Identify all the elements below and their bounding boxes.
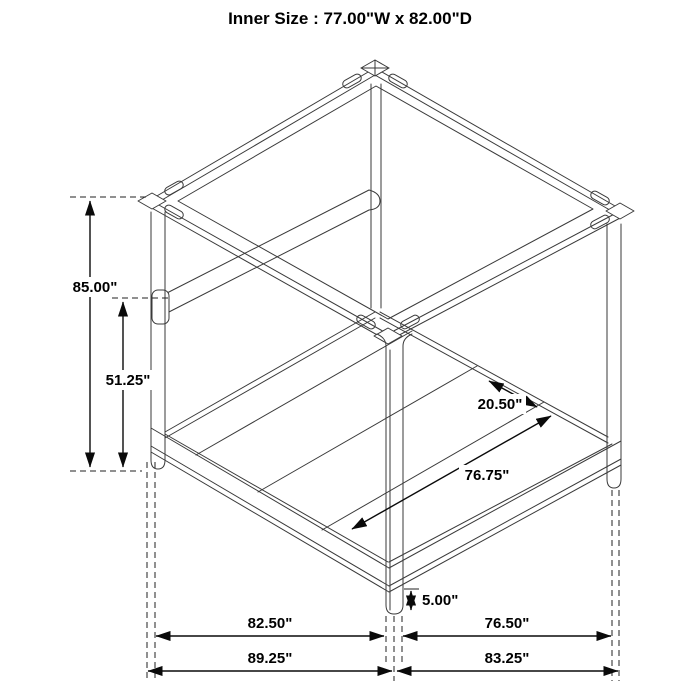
front-left-rail xyxy=(151,428,389,592)
front-post xyxy=(386,346,403,614)
dim-side-depth-overall-label: 83.25" xyxy=(485,650,530,667)
glass-inner-edge xyxy=(178,86,593,319)
dim-leg-height-label: 5.00" xyxy=(422,592,458,609)
dim-rail-top-height-label: 51.25" xyxy=(106,372,151,389)
extension-lines xyxy=(70,197,619,681)
drawing-title: Inner Size : 77.00"W x 82.00"D xyxy=(228,9,472,28)
dim-overall-height-label: 85.00" xyxy=(73,279,118,296)
rail-bracket xyxy=(152,290,169,324)
corner-slots xyxy=(163,73,610,331)
platform-slats xyxy=(196,331,544,530)
corner-caps xyxy=(138,60,634,344)
posts xyxy=(151,212,621,614)
front-right-rail xyxy=(389,441,621,592)
right-post xyxy=(607,224,621,488)
back-post xyxy=(371,84,381,308)
mid-rail xyxy=(152,190,380,324)
left-post xyxy=(151,212,165,469)
dim-front-width-inner-label: 82.50" xyxy=(248,615,293,632)
dim-corner-clearance-label: 20.50" xyxy=(478,396,523,413)
dim-inner-rail-length-arrow xyxy=(352,416,551,529)
dim-side-depth-inner-label: 76.50" xyxy=(485,615,530,632)
bed-frame-diagram: 85.00" 51.25" 20.50" 76.75" 5.00" 82.50"… xyxy=(0,0,700,700)
bed-frame-wireframe xyxy=(138,60,634,614)
dimension-labels: 85.00" 51.25" 20.50" 76.75" 5.00" 82.50"… xyxy=(69,277,534,667)
dim-front-width-overall-label: 89.25" xyxy=(248,650,293,667)
top-frame xyxy=(138,60,634,344)
drawing-canvas: 85.00" 51.25" 20.50" 76.75" 5.00" 82.50"… xyxy=(0,0,700,700)
dim-inner-rail-length-label: 76.75" xyxy=(465,467,510,484)
